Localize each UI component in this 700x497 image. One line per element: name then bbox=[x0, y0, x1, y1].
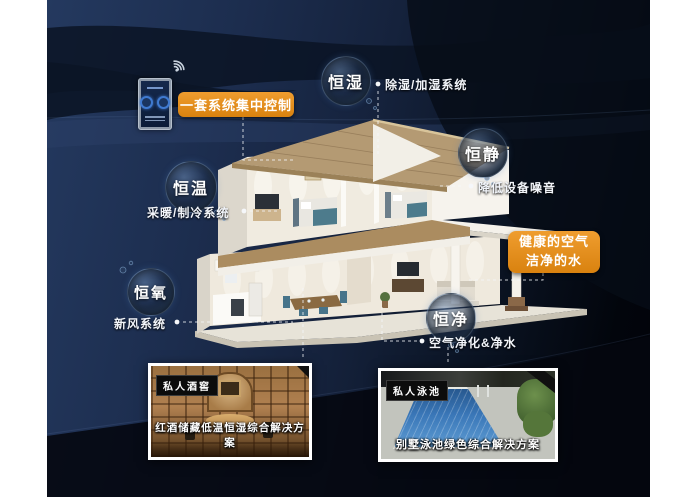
infographic-poster: 一套系统集中控制 恒湿 恒静 恒温 恒氧 恒净 除湿/加湿系统 降低设备噪音 采… bbox=[0, 0, 700, 497]
bubble-label: 恒净 bbox=[433, 306, 469, 330]
card-caption-pool: 别墅泳池绿色综合解决方案 bbox=[381, 436, 555, 452]
label-fresh-air-system: 新风系统 bbox=[114, 315, 166, 332]
callout-line1: 健康的空气 bbox=[519, 233, 589, 252]
control-panel-screen bbox=[141, 81, 169, 127]
corner-fold bbox=[295, 366, 309, 380]
bubble-constant-oxygen: 恒氧 bbox=[127, 268, 175, 316]
bubble-constant-humidity: 恒湿 bbox=[321, 56, 371, 106]
bubble-label: 恒氧 bbox=[134, 282, 168, 303]
panel-readouts bbox=[145, 116, 165, 121]
label-air-water-purification: 空气净化&净水 bbox=[429, 334, 517, 351]
bubble-constant-quiet: 恒静 bbox=[458, 128, 508, 178]
healthy-air-clean-water-callout: 健康的空气 洁净的水 bbox=[508, 231, 600, 273]
dial-icon bbox=[157, 96, 170, 109]
label-noise-reduction: 降低设备噪音 bbox=[478, 179, 556, 196]
smart-control-panel bbox=[138, 78, 172, 130]
panel-title-bar bbox=[147, 87, 164, 89]
card-tag-pool: 私人泳池 bbox=[386, 380, 448, 401]
wine-cellar-card: 私人酒窖 红酒储藏低温恒湿综合解决方案 bbox=[148, 363, 312, 460]
card-tag-wine-cellar: 私人酒窖 bbox=[156, 375, 218, 396]
wifi-icon bbox=[167, 58, 185, 76]
bubble-label: 恒静 bbox=[465, 141, 501, 165]
label-dehumidify-system: 除湿/加湿系统 bbox=[385, 76, 467, 93]
bubble-label: 恒温 bbox=[173, 175, 209, 199]
callout-line2: 洁净的水 bbox=[526, 252, 582, 271]
wine-picture-frame bbox=[219, 380, 241, 397]
private-pool-card: 私人泳池 别墅泳池绿色综合解决方案 bbox=[378, 368, 558, 462]
poster-stage: 一套系统集中控制 恒湿 恒静 恒温 恒氧 恒净 除湿/加湿系统 降低设备噪音 采… bbox=[47, 0, 650, 497]
card-caption-wine: 红酒储藏低温恒湿综合解决方案 bbox=[151, 420, 309, 450]
central-control-callout: 一套系统集中控制 bbox=[178, 92, 294, 117]
label-heating-cooling-system: 采暖/制冷系统 bbox=[147, 204, 229, 221]
pool-ladder bbox=[477, 385, 489, 397]
dial-icon bbox=[140, 96, 153, 109]
pool-greenery bbox=[523, 411, 553, 437]
panel-dials bbox=[140, 96, 170, 109]
bubble-label: 恒湿 bbox=[328, 69, 364, 93]
